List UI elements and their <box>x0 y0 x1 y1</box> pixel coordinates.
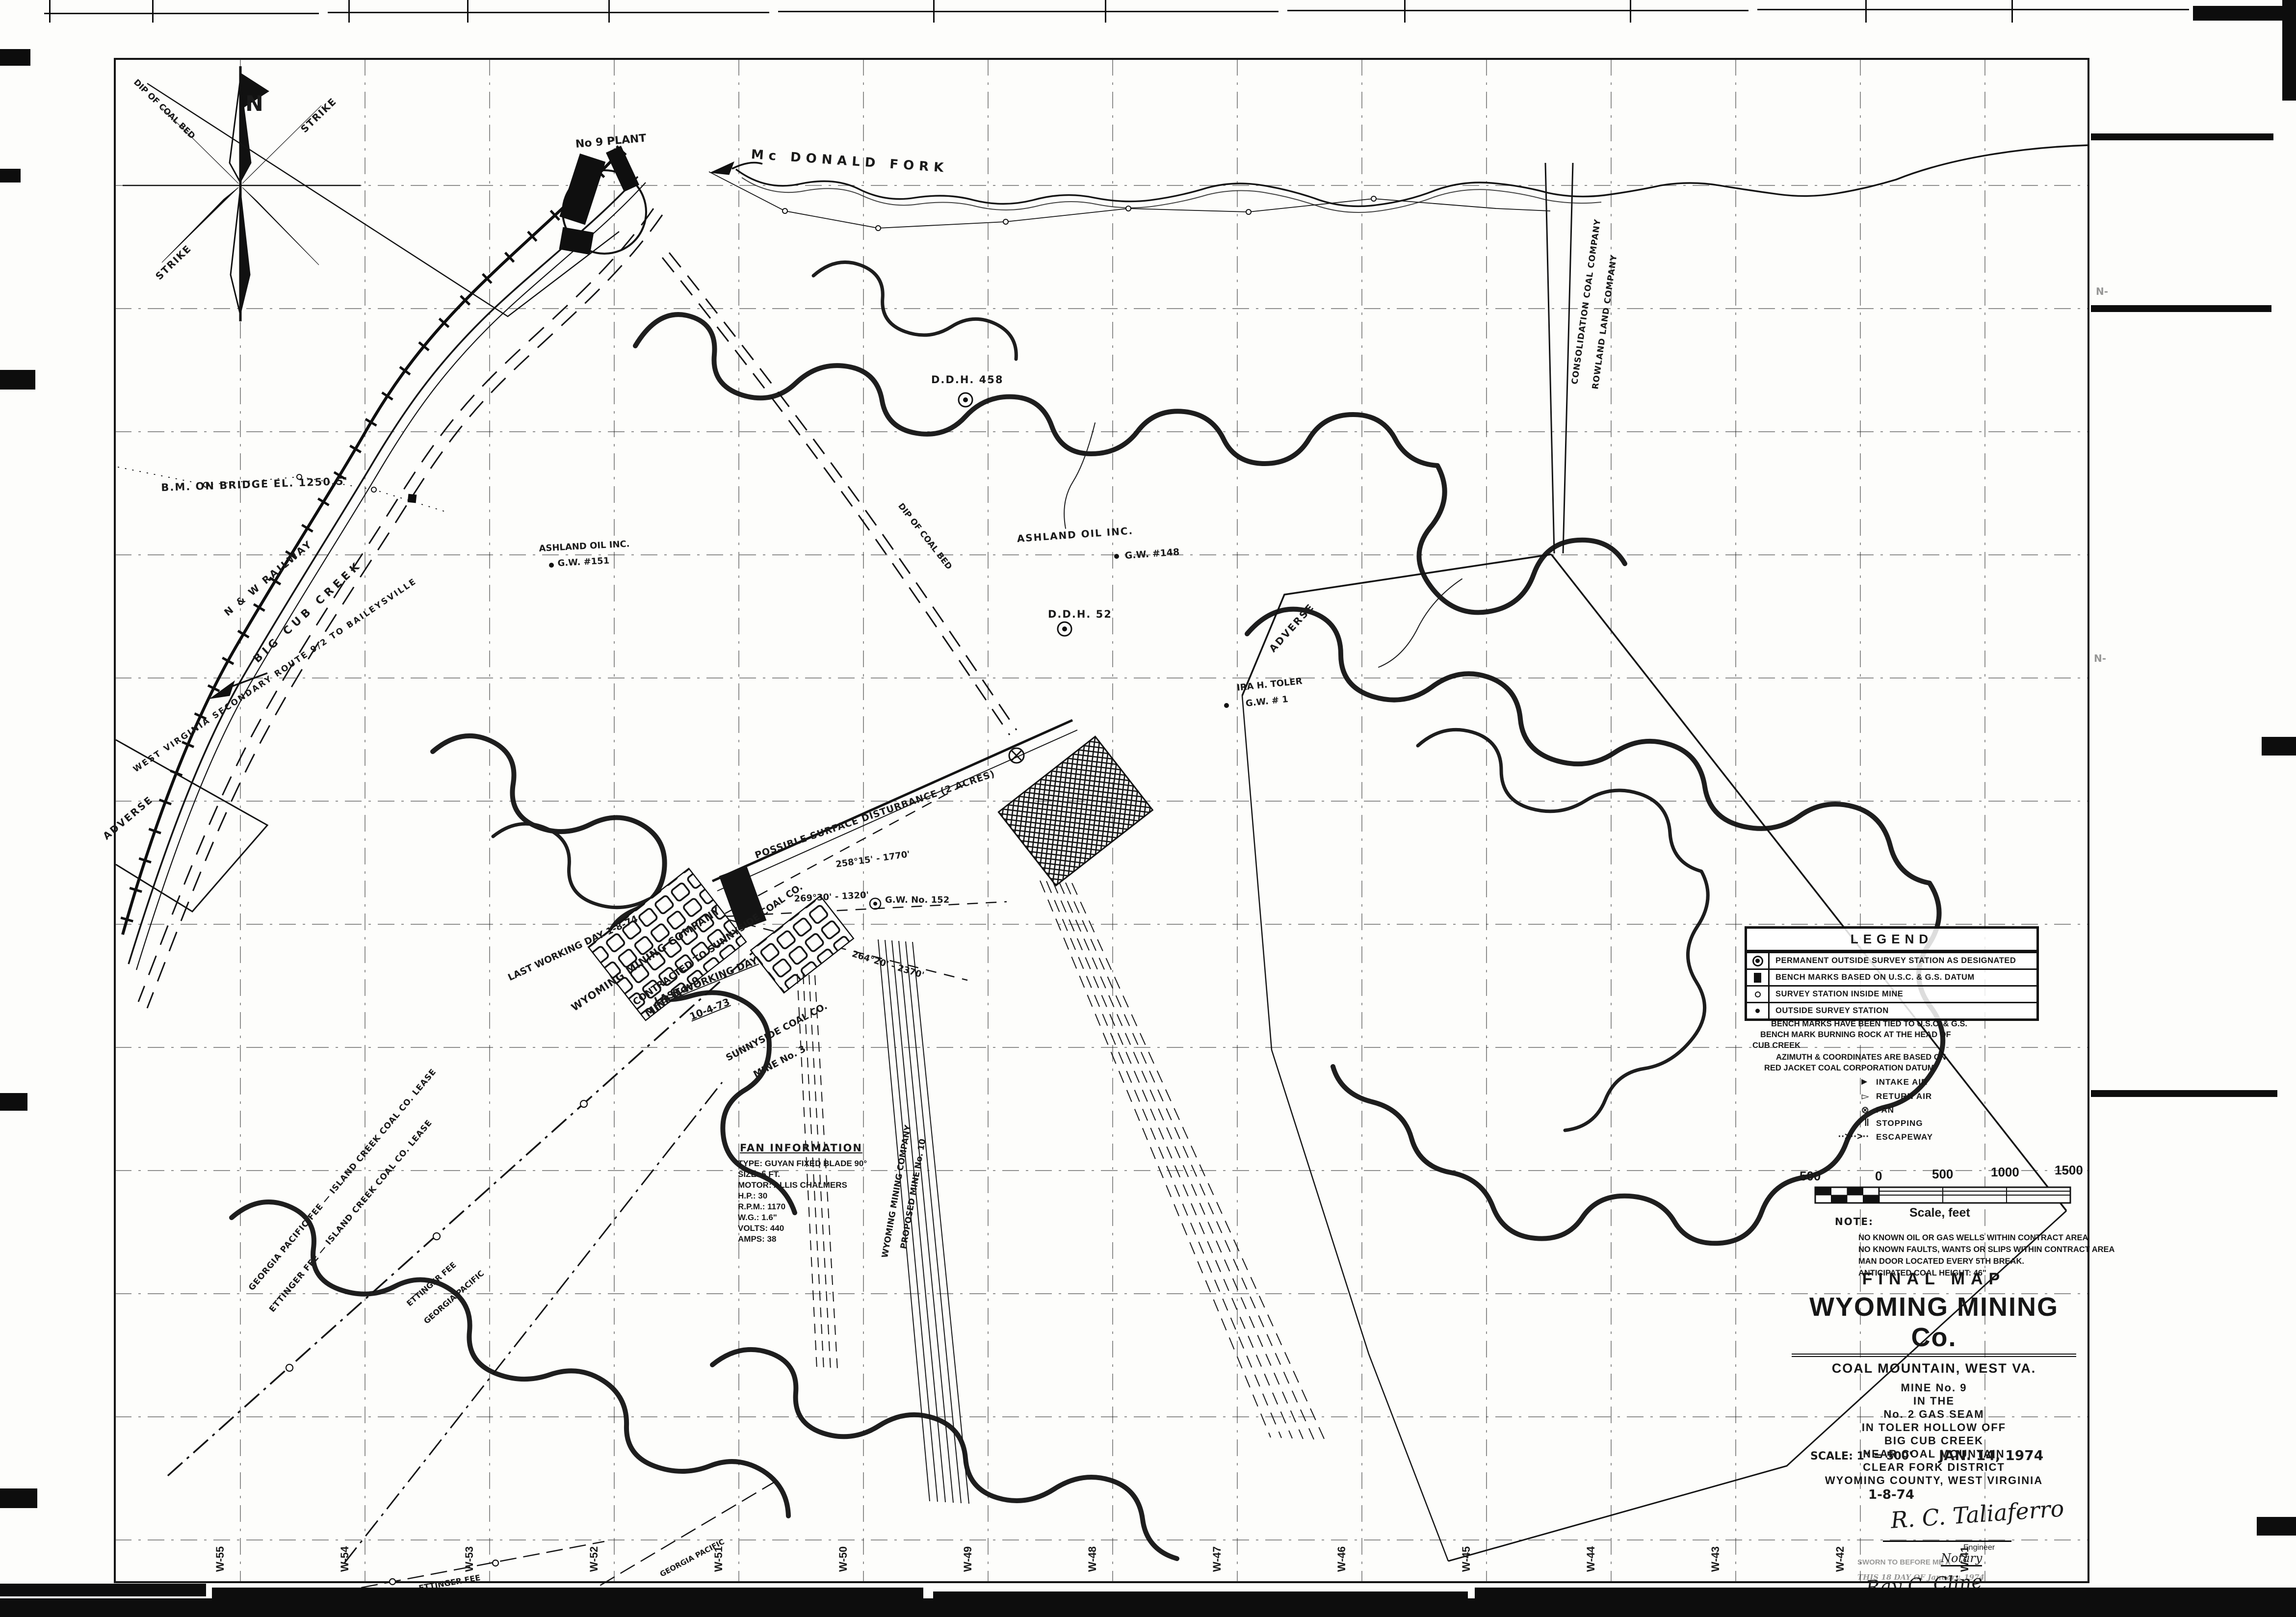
note-line: NO KNOWN FAULTS, WANTS OR SLIPS WITHIN C… <box>1858 1245 2114 1254</box>
grid-label-w46: W-46 <box>1335 1546 1347 1572</box>
scan-artifact <box>2091 1090 2277 1097</box>
title-line: No. 2 GAS SEAM <box>1792 1408 2076 1421</box>
signature-rule <box>1883 1540 2011 1542</box>
scale-tick: 500 <box>1932 1167 1953 1182</box>
bench-mark-icon <box>1747 970 1770 985</box>
fan-info-line: SIZE: 5 FT. <box>738 1170 780 1179</box>
scan-artifact <box>212 1588 923 1598</box>
title-line: WYOMING COUNTY, WEST VIRGINIA <box>1792 1474 2076 1487</box>
scan-artifact <box>467 0 469 23</box>
scan-artifact <box>0 370 35 390</box>
fan-info-title: FAN INFORMATION <box>740 1142 862 1154</box>
fan-info-line: R.P.M.: 1170 <box>738 1202 785 1212</box>
fan-info-line: MOTOR: ALLIS CHALMERS <box>738 1180 847 1190</box>
legend-row: BENCH MARKS BASED ON U.S.C. & G.S. DATUM <box>1747 968 2036 985</box>
nw-railway-line <box>123 150 622 935</box>
scan-artifact <box>152 0 154 23</box>
label-northing-margin-1: N- <box>2096 286 2108 297</box>
lease-boundary-lines <box>116 163 2066 1597</box>
legend-air-row: ► INTAKE AIR <box>1835 1076 1928 1088</box>
scan-artifact <box>1475 1588 2296 1598</box>
legend-note: BENCH MARK BURNING ROCK AT THE HEAD OF <box>1760 1030 1951 1040</box>
scan-artifact <box>49 0 51 23</box>
note-title: NOTE: <box>1835 1216 1874 1227</box>
intake-air-arrow-icon: ► <box>1835 1076 1869 1088</box>
scan-artifact <box>328 12 769 13</box>
scale-tick: 1500 <box>2055 1163 2083 1178</box>
cert-date: 1-8-74 <box>1868 1487 1914 1502</box>
scanned-mine-map-sheet: No 9 PLANT Mc DONALD FORK B.M. ON BRIDGE… <box>0 0 2296 1617</box>
grid-label-w55: W-55 <box>214 1546 226 1572</box>
scan-artifact <box>0 1093 27 1111</box>
legend-note: CUB CREEK <box>1752 1041 1800 1050</box>
scan-artifact <box>933 1591 1468 1598</box>
scan-artifact <box>2011 0 2013 23</box>
title-line: IN THE <box>1792 1394 2076 1408</box>
outside-survey-station-icon <box>1747 1003 1770 1018</box>
legend-air-row: ▻ RETURN AIR <box>1835 1090 1932 1102</box>
scan-artifact <box>0 169 21 183</box>
legend-row: OUTSIDE SURVEY STATION <box>1747 1002 2036 1018</box>
scale-caption: Scale, feet <box>1909 1206 1970 1220</box>
inside-survey-station-icon <box>1747 987 1770 1002</box>
scale-tick: 500 <box>1800 1169 1821 1184</box>
label-ddh52: D.D.H. 52 <box>1048 608 1112 620</box>
legend-item-label: BENCH MARKS BASED ON U.S.C. & G.S. DATUM <box>1770 973 1975 982</box>
scan-artifact <box>1404 0 1406 23</box>
legend-row: PERMANENT OUTSIDE SURVEY STATION AS DESI… <box>1747 952 2036 968</box>
projected-entries-southeast <box>1040 881 1325 1440</box>
bench-mark-square <box>408 494 417 503</box>
scan-artifact <box>933 0 935 23</box>
scan-artifact <box>778 11 1278 12</box>
scale-tick: 0 <box>1875 1169 1882 1184</box>
scan-artifact <box>0 1598 2296 1617</box>
scan-artifact <box>1865 0 1867 23</box>
notary-sworn-line: SWORN TO BEFORE ME A <box>1857 1558 1951 1566</box>
grid-label-w51: W-51 <box>712 1546 724 1572</box>
legend-air-row: ‖ STOPPING <box>1835 1118 1923 1129</box>
legend-air-row: ··>··>·· ESCAPEWAY <box>1835 1131 1933 1143</box>
scan-artifact <box>1757 9 2189 10</box>
note-line: NO KNOWN OIL OR GAS WELLS WITHIN CONTRAC… <box>1858 1233 2088 1243</box>
note-line: MAN DOOR LOCATED EVERY 5TH BREAK. <box>1858 1257 2024 1266</box>
escapeway-icon: ··>··>·· <box>1835 1131 1869 1143</box>
notary-word: Notary <box>1941 1551 1982 1566</box>
contour-lines <box>232 262 1943 1559</box>
air-label: ESCAPEWAY <box>1876 1132 1933 1142</box>
title-final-map: FINAL MAP <box>1792 1270 2076 1289</box>
air-label: INTAKE AIR <box>1876 1077 1928 1087</box>
air-label: STOPPING <box>1876 1119 1923 1128</box>
legend-note: BENCH MARKS HAVE BEEN TIED TO U.S.C. & G… <box>1771 1019 1967 1029</box>
compass-north-label: N <box>245 91 263 116</box>
title-line: IN TOLER HOLLOW OFF <box>1792 1421 2076 1434</box>
air-label: RETURN AIR <box>1876 1092 1932 1101</box>
wv-route-road <box>138 209 662 1008</box>
permanent-outside-survey-station-icon <box>1747 953 1770 968</box>
grid-label-w53: W-53 <box>463 1546 475 1572</box>
label-northing-margin-2: N- <box>2094 652 2106 664</box>
mcdonald-fork-stream <box>736 145 2088 212</box>
grid-label-w42: W-42 <box>1834 1546 1846 1572</box>
legend-item-label: PERMANENT OUTSIDE SURVEY STATION AS DESI… <box>1770 956 2016 965</box>
grid-label-w54: W-54 <box>339 1546 350 1572</box>
title-line: MINE No. 9 <box>1792 1381 2076 1394</box>
grid-label-w49: W-49 <box>962 1546 973 1572</box>
legend-title: LEGEND <box>1747 929 2036 952</box>
grid-label-w50: W-50 <box>837 1546 849 1572</box>
grid-label-w52: W-52 <box>588 1546 600 1572</box>
fan-info-line: VOLTS: 440 <box>738 1224 784 1233</box>
legend-note: AZIMUTH & COORDINATES ARE BASED ON <box>1776 1053 1946 1062</box>
grid-label-w45: W-45 <box>1460 1546 1472 1572</box>
scan-artifact <box>2091 305 2271 312</box>
legend-box: LEGEND PERMANENT OUTSIDE SURVEY STATION … <box>1745 926 2039 1021</box>
legend-row: SURVEY STATION INSIDE MINE <box>1747 985 2036 1002</box>
stopping-icon: ‖ <box>1835 1118 1869 1129</box>
label-ddh458: D.D.H. 458 <box>931 374 1004 386</box>
fan-info-line: W.G.: 1.6" <box>738 1213 777 1223</box>
mine-workings <box>588 736 1325 1504</box>
scan-artifact <box>2193 6 2296 21</box>
projected-entries-southwest <box>797 974 837 1370</box>
legend-item-label: SURVEY STATION INSIDE MINE <box>1770 990 1903 999</box>
scale-bar-graphic <box>1815 1187 2070 1203</box>
title-date: JAN. 14, 1974 <box>1939 1447 2043 1463</box>
fan-icon: ⊗ <box>1835 1104 1869 1116</box>
scan-artifact <box>2262 737 2296 756</box>
title-scale: SCALE: 1" = 500' <box>1810 1450 1912 1462</box>
label-gw152: G.W. No. 152 <box>885 895 949 905</box>
scan-artifact <box>0 49 30 66</box>
grid-label-w47: W-47 <box>1211 1546 1223 1572</box>
grid-label-w44: W-44 <box>1585 1546 1596 1572</box>
title-location: COAL MOUNTAIN, WEST VA. <box>1792 1361 2076 1376</box>
title-line: BIG CUB CREEK <box>1792 1434 2076 1447</box>
legend-air-row: ⊗ FAN <box>1835 1104 1894 1116</box>
scan-artifact <box>2257 1517 2296 1536</box>
scan-artifact <box>2091 133 2273 140</box>
title-company-name: WYOMING MINING Co. <box>1792 1291 2076 1357</box>
scan-artifact <box>1630 0 1631 23</box>
fan-symbol <box>1009 748 1024 763</box>
scan-artifact <box>608 0 610 23</box>
survey-traverse-lines <box>118 83 1550 511</box>
legend-note: RED JACKET COAL CORPORATION DATUM <box>1764 1064 1934 1073</box>
scan-artifact <box>348 0 350 23</box>
air-label: FAN <box>1876 1105 1894 1115</box>
scan-artifact <box>1105 0 1106 23</box>
legend-item-label: OUTSIDE SURVEY STATION <box>1770 1006 1889 1016</box>
scan-artifact <box>44 13 319 14</box>
fan-info-line: TYPE: GUYAN FIXED BLADE 90° <box>738 1159 867 1169</box>
fan-info-line: AMPS: 38 <box>738 1234 776 1244</box>
grid-label-w48: W-48 <box>1086 1546 1098 1572</box>
mine-access-road <box>662 253 1017 735</box>
no9-plant-structures <box>559 146 646 255</box>
scan-artifact <box>0 1584 206 1596</box>
scan-artifact <box>1287 10 1748 11</box>
scan-artifact <box>2282 0 2296 101</box>
return-air-arrow-icon: ▻ <box>1835 1090 1869 1102</box>
portal-workings-block <box>998 736 1152 886</box>
fan-info-line: H.P.: 30 <box>738 1191 767 1201</box>
scale-tick: 1000 <box>1991 1165 2019 1180</box>
scan-artifact <box>0 1488 37 1508</box>
grid-label-w43: W-43 <box>1709 1546 1721 1572</box>
